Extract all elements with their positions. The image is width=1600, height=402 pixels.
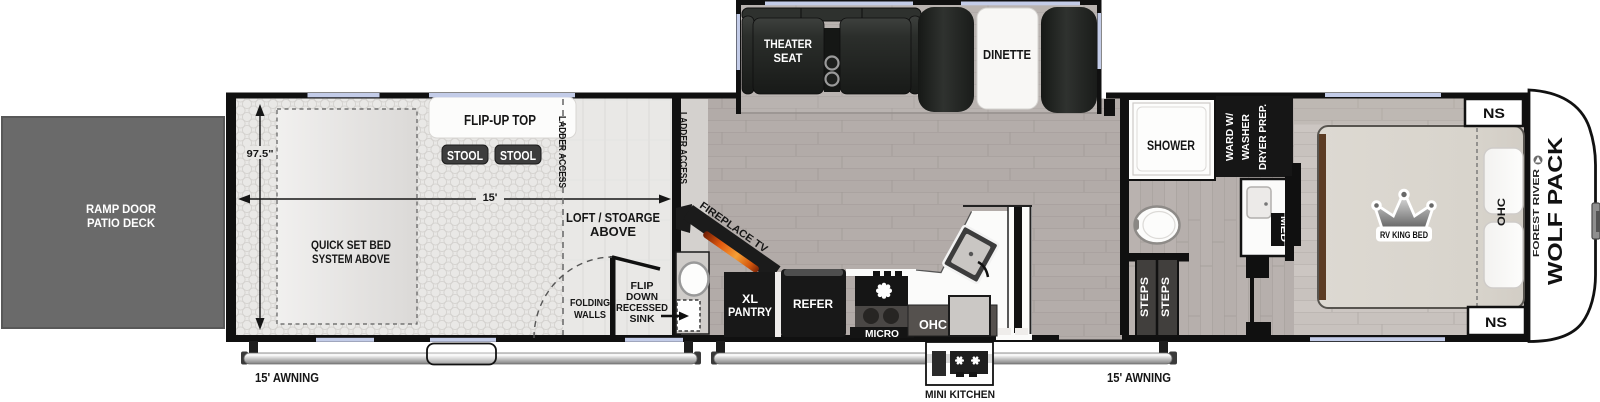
svg-text:SHOWER: SHOWER xyxy=(1147,138,1195,153)
svg-text:FLIP-UP TOP: FLIP-UP TOP xyxy=(464,113,536,129)
svg-text:QUICK SET BED: QUICK SET BED xyxy=(311,238,391,252)
svg-text:REFER: REFER xyxy=(793,299,834,311)
svg-text:WALLS: WALLS xyxy=(574,309,606,321)
svg-text:SEAT: SEAT xyxy=(774,51,804,65)
svg-text:STEPS: STEPS xyxy=(1160,277,1172,317)
svg-text:LOFT / STOARGE: LOFT / STOARGE xyxy=(566,211,660,225)
svg-text:ABOVE: ABOVE xyxy=(590,225,636,239)
svg-text:DINETTE: DINETTE xyxy=(983,48,1031,62)
svg-text:WOLF PACK: WOLF PACK xyxy=(1545,136,1567,285)
svg-text:XL: XL xyxy=(742,294,758,306)
svg-text:THEATER: THEATER xyxy=(764,37,812,51)
svg-text:FOREST RIVER: FOREST RIVER xyxy=(1532,169,1541,257)
svg-text:STOOL: STOOL xyxy=(447,149,483,163)
svg-text:RV KING BED: RV KING BED xyxy=(1380,230,1428,241)
svg-text:PANTRY: PANTRY xyxy=(728,307,772,319)
svg-text:WASHER: WASHER xyxy=(1240,114,1252,160)
svg-text:FOLDING: FOLDING xyxy=(570,297,610,309)
svg-text:97.5": 97.5" xyxy=(247,148,274,160)
svg-text:15' AWNING: 15' AWNING xyxy=(255,371,319,385)
svg-text:15': 15' xyxy=(483,192,498,204)
svg-text:MINI KITCHEN: MINI KITCHEN xyxy=(925,389,995,401)
svg-text:OHC: OHC xyxy=(1496,198,1508,226)
svg-text:STEPS: STEPS xyxy=(1139,277,1151,317)
svg-text:MICRO: MICRO xyxy=(865,329,899,340)
svg-text:PATIO DECK: PATIO DECK xyxy=(87,216,155,230)
svg-text:DRYER PREP.: DRYER PREP. xyxy=(1257,104,1269,170)
svg-text:NS: NS xyxy=(1485,315,1507,330)
svg-text:RAMP DOOR: RAMP DOOR xyxy=(86,202,156,216)
svg-text:WARD W/: WARD W/ xyxy=(1224,113,1236,161)
svg-text:LADDER ACCESS: LADDER ACCESS xyxy=(556,116,568,188)
svg-text:NS: NS xyxy=(1483,106,1505,121)
svg-text:LADDER ACCESS: LADDER ACCESS xyxy=(677,112,689,184)
svg-text:15' AWNING: 15' AWNING xyxy=(1107,371,1171,385)
svg-text:SINK: SINK xyxy=(630,313,655,325)
svg-text:STOOL: STOOL xyxy=(500,149,536,163)
svg-text:SYSTEM ABOVE: SYSTEM ABOVE xyxy=(312,252,390,266)
svg-text:OHC: OHC xyxy=(919,317,948,332)
